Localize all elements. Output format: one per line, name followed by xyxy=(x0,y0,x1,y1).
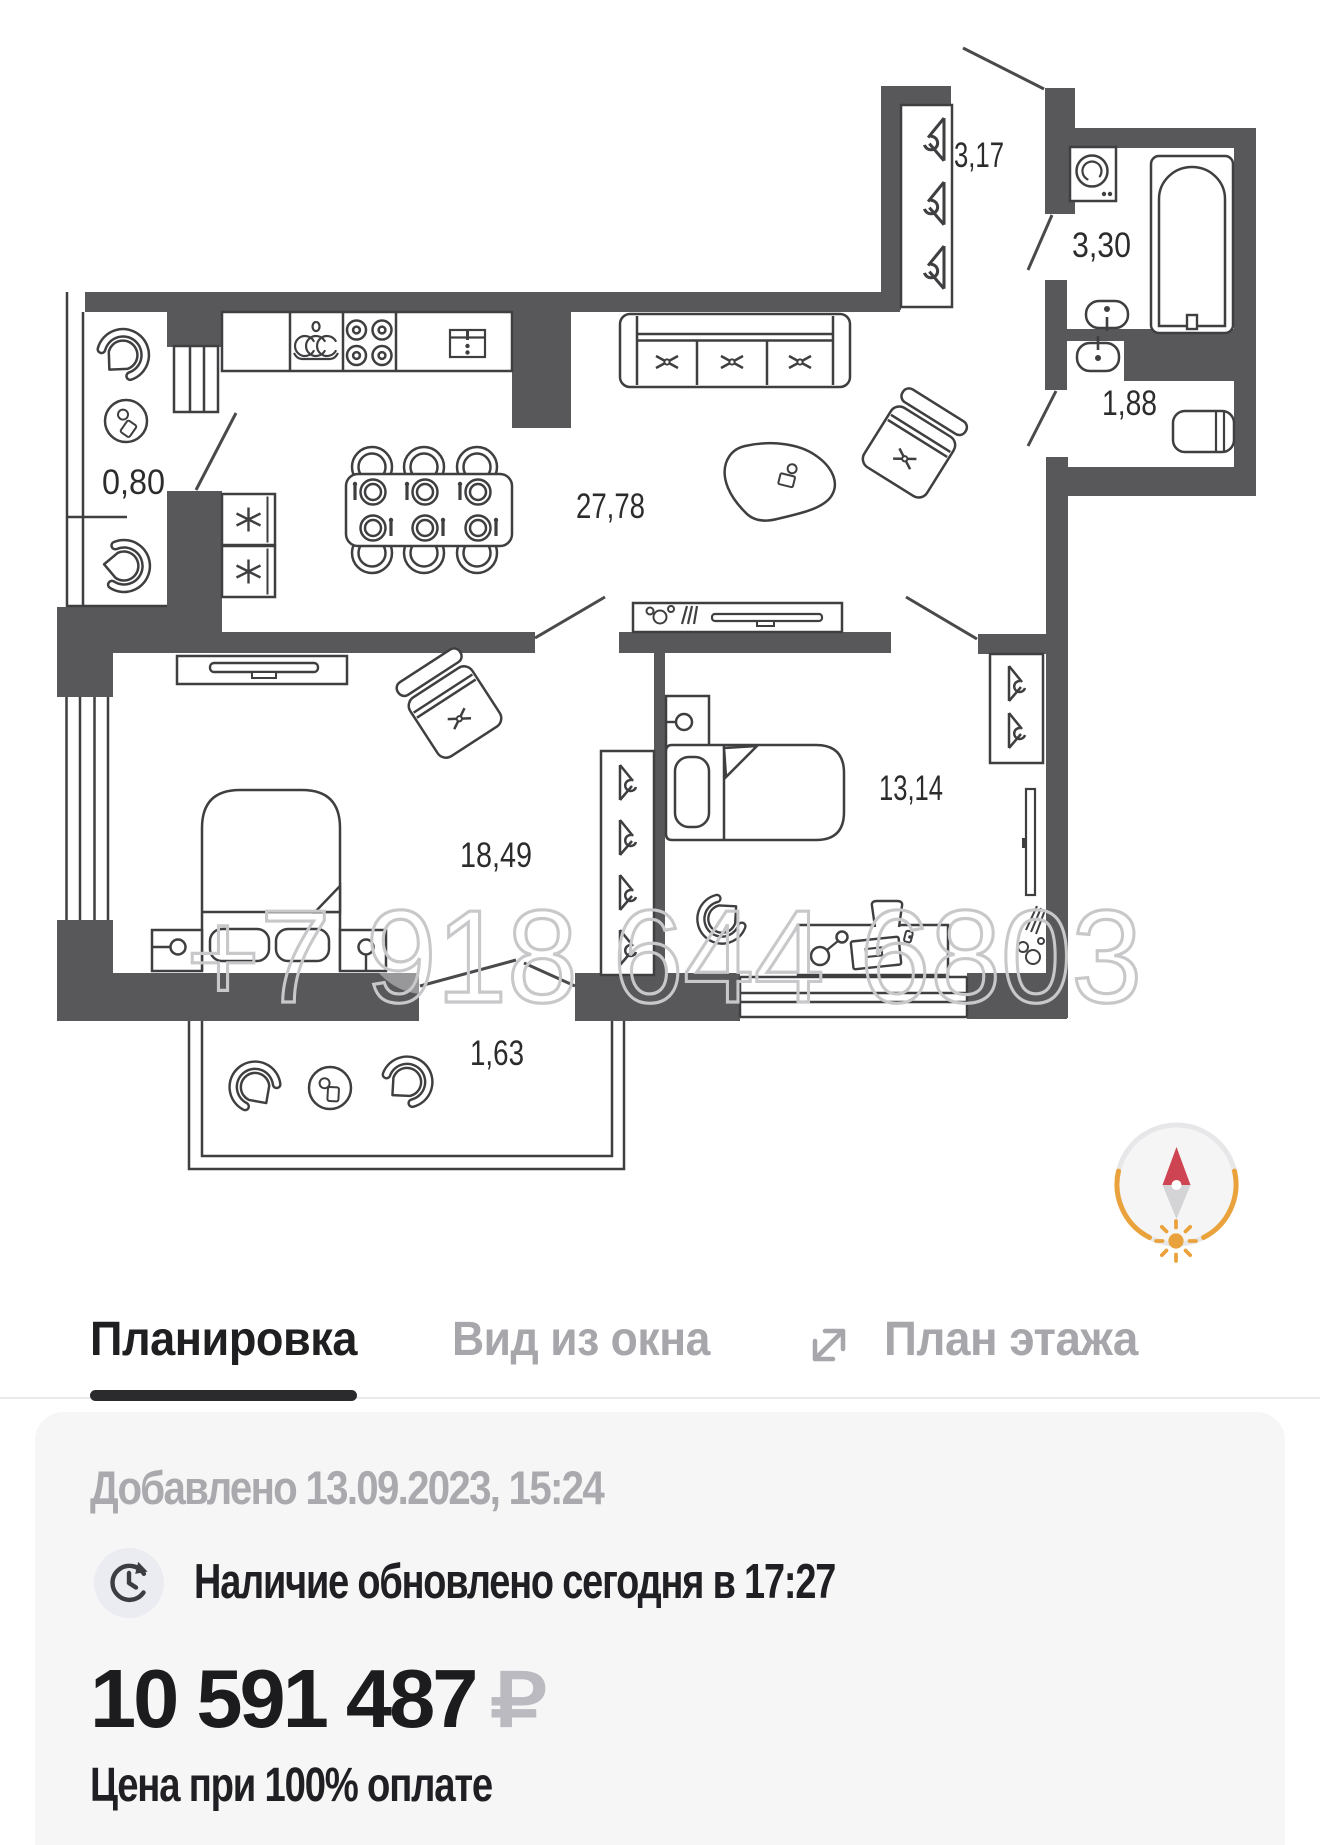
svg-text:3,30: 3,30 xyxy=(1072,226,1131,265)
svg-text:27,78: 27,78 xyxy=(576,487,645,526)
svg-text:3,17: 3,17 xyxy=(954,136,1004,175)
svg-text:1,88: 1,88 xyxy=(1102,384,1157,423)
svg-text:0,80: 0,80 xyxy=(102,463,165,502)
svg-text:1,63: 1,63 xyxy=(470,1034,524,1073)
svg-text:18,49: 18,49 xyxy=(460,836,532,875)
svg-text:+7 918 644 6803: +7 918 644 6803 xyxy=(186,883,1142,1030)
svg-text:13,14: 13,14 xyxy=(879,769,943,808)
